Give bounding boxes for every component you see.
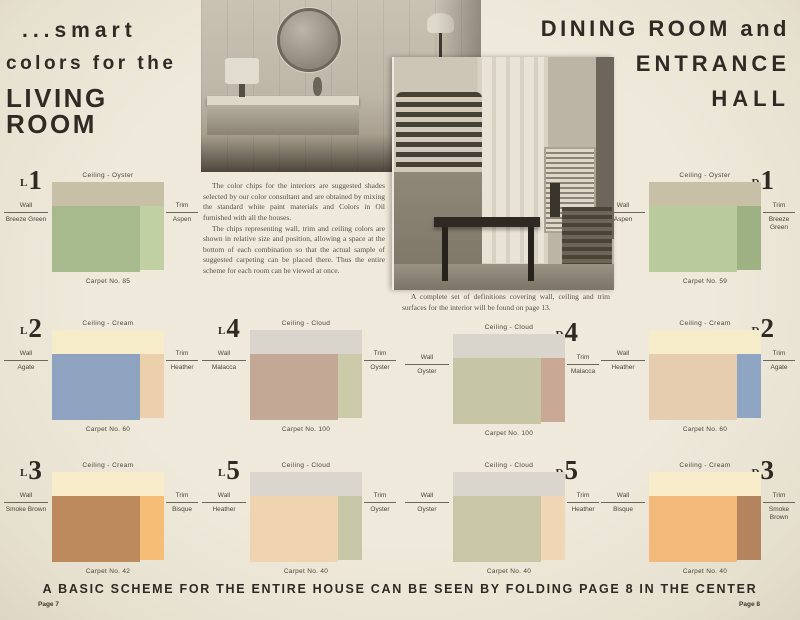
wall-chip — [649, 354, 737, 420]
round-mirror — [277, 8, 341, 72]
carpet-caption: Carpet No. 100 — [453, 430, 565, 437]
console-front — [207, 105, 359, 135]
candlestick-lamp — [550, 183, 560, 217]
scheme-letter: L — [218, 467, 225, 479]
trim-label: Trim Oyster — [364, 350, 396, 372]
table-leg — [528, 227, 534, 281]
trim-label: Trim Smoke Brown — [763, 492, 795, 522]
scheme-digit: 2 — [28, 318, 42, 340]
trim-color-name: Breeze Green — [763, 213, 795, 232]
wall-label: Wall Bisque — [601, 492, 645, 514]
ceiling-chip — [649, 182, 761, 206]
swatch-box — [250, 330, 362, 420]
wall-color-name: Smoke Brown — [4, 503, 48, 514]
trim-chip — [140, 206, 164, 270]
wall-chip — [52, 354, 140, 420]
wall-label: Wall Malacca — [202, 350, 246, 372]
trim-chip — [737, 354, 761, 418]
table-lamp-base — [239, 84, 245, 97]
trim-label: Trim Bisque — [166, 492, 198, 514]
trim-label: Trim Oyster — [364, 492, 396, 514]
trim-label: Trim Heather — [567, 492, 599, 514]
wall-color-name: Oyster — [405, 503, 449, 514]
wall-label: Wall Oyster — [405, 354, 449, 376]
color-scheme-panel: L5 Ceiling - Cloud Wall Heather Trim Oys… — [200, 448, 395, 582]
footer-banner: A BASIC SCHEME FOR THE ENTIRE HOUSE CAN … — [0, 582, 800, 596]
trim-word: Trim — [567, 354, 599, 365]
wall-color-name: Heather — [202, 503, 246, 514]
wall-color-name: Agate — [4, 361, 48, 372]
wall-chip — [649, 496, 737, 562]
ceiling-chip — [649, 472, 761, 496]
swatch-box — [250, 472, 362, 562]
ceiling-chip — [453, 472, 565, 496]
striped-settee — [396, 92, 482, 172]
scheme-digit: 2 — [761, 318, 775, 340]
title-line-dining-room-and: DINING ROOM and — [490, 18, 790, 40]
vase — [313, 77, 322, 96]
wall-word: Wall — [4, 350, 48, 361]
wall-color-name: Bisque — [601, 503, 645, 514]
ceiling-chip — [52, 472, 164, 496]
carpet-caption: Carpet No. 100 — [250, 426, 362, 433]
carpet-caption: Carpet No. 40 — [453, 568, 565, 575]
ceiling-chip — [649, 330, 761, 354]
console-shelf — [207, 96, 359, 105]
wall-label: Wall Agate — [4, 350, 48, 372]
trim-chip — [541, 358, 565, 422]
wall-label: Wall Heather — [601, 350, 645, 372]
page-number-left: Page 7 — [38, 601, 59, 608]
scheme-letter: L — [20, 177, 27, 189]
carpet-caption: Carpet No. 60 — [649, 426, 761, 433]
ceiling-caption: Ceiling - Oyster — [649, 172, 761, 179]
ceiling-chip — [52, 330, 164, 354]
trim-label: Trim Agate — [763, 350, 795, 372]
wall-word: Wall — [202, 492, 246, 503]
color-scheme-panel: L1 Ceiling - Oyster Wall Breeze Green Tr… — [2, 158, 197, 292]
wall-color-name: Oyster — [405, 365, 449, 376]
scheme-number: L5 — [218, 460, 240, 482]
swatch-box — [649, 330, 761, 420]
light-curtain — [482, 57, 544, 263]
color-scheme-panel: L4 Ceiling - Cloud Wall Malacca Trim Oys… — [200, 306, 395, 440]
scheme-digit: 3 — [761, 460, 775, 482]
scheme-letter: L — [20, 467, 27, 479]
wall-color-name: Heather — [601, 361, 645, 372]
trim-word: Trim — [166, 350, 198, 361]
trim-word: Trim — [567, 492, 599, 503]
trim-color-name: Oyster — [364, 361, 396, 372]
wall-color-name: Breeze Green — [4, 213, 48, 224]
wall-chip — [649, 206, 737, 272]
trim-color-name: Aspen — [166, 213, 198, 224]
wall-word: Wall — [405, 492, 449, 503]
page-number-right: Page 8 — [739, 601, 760, 608]
ceiling-caption: Ceiling - Cloud — [453, 462, 565, 469]
title-line-colors-for-the: colors for the — [6, 54, 201, 73]
intro-paragraphs: The color chips for the interiors are su… — [203, 181, 385, 277]
trim-color-name: Heather — [567, 503, 599, 514]
scheme-digit: 5 — [565, 460, 579, 482]
color-scheme-panel: L3 Ceiling - Cream Wall Smoke Brown Trim… — [2, 448, 197, 582]
scheme-letter: L — [20, 325, 27, 337]
wall-chip — [453, 358, 541, 424]
ceiling-caption: Ceiling - Cream — [52, 462, 164, 469]
trim-color-name: Malacca — [567, 365, 599, 376]
wall-chip — [52, 206, 140, 272]
dining-room-photo — [392, 57, 614, 290]
wall-label: Wall Oyster — [405, 492, 449, 514]
scheme-digit: 4 — [565, 322, 579, 344]
carpet-caption: Carpet No. 40 — [250, 568, 362, 575]
scheme-digit: 3 — [28, 460, 42, 482]
color-scheme-panel: D1 Ceiling - Oyster Wall Aspen Trim Bree… — [599, 158, 794, 292]
carpet-caption: Carpet No. 59 — [649, 278, 761, 285]
carpet-caption: Carpet No. 42 — [52, 568, 164, 575]
trim-word: Trim — [166, 492, 198, 503]
wall-chip — [250, 354, 338, 420]
trim-color-name: Smoke Brown — [763, 503, 795, 522]
paragraph-color-chips: The color chips for the interiors are su… — [203, 181, 385, 224]
wall-word: Wall — [405, 354, 449, 365]
scheme-number: L2 — [20, 318, 42, 340]
wall-label: Wall Heather — [202, 492, 246, 514]
dining-table-top — [434, 217, 540, 227]
ceiling-caption: Ceiling - Oyster — [52, 172, 164, 179]
scheme-number: L1 — [20, 170, 42, 192]
table-leg — [442, 227, 448, 281]
trim-color-name: Oyster — [364, 503, 396, 514]
trim-word: Trim — [166, 202, 198, 213]
trim-color-name: Heather — [166, 361, 198, 372]
wall-label: Wall Smoke Brown — [4, 492, 48, 514]
color-scheme-panel: D3 Ceiling - Cream Wall Bisque Trim Smok… — [599, 448, 794, 582]
wall-word: Wall — [601, 492, 645, 503]
wall-word: Wall — [4, 202, 48, 213]
carpet-caption: Carpet No. 85 — [52, 278, 164, 285]
trim-label: Trim Aspen — [166, 202, 198, 224]
trim-chip — [140, 354, 164, 418]
swatch-box — [52, 330, 164, 420]
brochure-spread: ...smart colors for the LIVING ROOM DINI… — [0, 0, 800, 620]
trim-color-name: Agate — [763, 361, 795, 372]
ceiling-caption: Ceiling - Cloud — [453, 324, 565, 331]
wall-color-name: Malacca — [202, 361, 246, 372]
wall-chip — [250, 496, 338, 562]
swatch-box — [52, 472, 164, 562]
ceiling-chip — [453, 334, 565, 358]
ceiling-caption: Ceiling - Cream — [52, 320, 164, 327]
scheme-digit: 1 — [28, 170, 42, 192]
scheme-digit: 4 — [226, 318, 240, 340]
color-scheme-panel: D2 Ceiling - Cream Wall Heather Trim Aga… — [599, 306, 794, 440]
trim-label: Trim Malacca — [567, 354, 599, 376]
swatch-box — [453, 334, 565, 424]
trim-word: Trim — [364, 492, 396, 503]
table-lamp-shade — [225, 58, 259, 84]
trim-label: Trim Heather — [166, 350, 198, 372]
living-room-title: ...smart colors for the LIVING ROOM — [6, 20, 201, 137]
ceiling-chip — [250, 472, 362, 496]
scheme-digit: 5 — [226, 460, 240, 482]
color-scheme-panel: D5 Ceiling - Cloud Wall Oyster Trim Heat… — [403, 448, 598, 582]
color-scheme-panel: D4 Ceiling - Cloud Wall Oyster Trim Mala… — [403, 310, 598, 444]
ceiling-chip — [52, 182, 164, 206]
ceiling-caption: Ceiling - Cream — [649, 320, 761, 327]
trim-chip — [737, 496, 761, 560]
scheme-letter: L — [218, 325, 225, 337]
swatch-box — [649, 472, 761, 562]
trim-chip — [338, 496, 362, 560]
wall-word: Wall — [4, 492, 48, 503]
carpet-caption: Carpet No. 40 — [649, 568, 761, 575]
trim-chip — [541, 496, 565, 560]
wall-word: Wall — [601, 350, 645, 361]
trim-word: Trim — [763, 202, 795, 213]
wall-label: Wall Breeze Green — [4, 202, 48, 224]
trim-word: Trim — [763, 492, 795, 503]
color-scheme-panel: L2 Ceiling - Cream Wall Agate Trim Heath… — [2, 306, 197, 440]
trim-label: Trim Breeze Green — [763, 202, 795, 232]
wall-word: Wall — [202, 350, 246, 361]
trim-word: Trim — [763, 350, 795, 361]
trim-color-name: Bisque — [166, 503, 198, 514]
swatch-box — [649, 182, 761, 272]
trim-chip — [737, 206, 761, 270]
carpet-caption: Carpet No. 60 — [52, 426, 164, 433]
ceiling-caption: Ceiling - Cloud — [250, 462, 362, 469]
title-line-smart: ...smart — [6, 20, 201, 41]
ceiling-caption: Ceiling - Cream — [649, 462, 761, 469]
wall-chip — [453, 496, 541, 562]
swatch-box — [52, 182, 164, 272]
scheme-number: L3 — [20, 460, 42, 482]
photo-floor — [394, 264, 614, 290]
trim-word: Trim — [364, 350, 396, 361]
title-line-living-room: LIVING ROOM — [6, 85, 201, 137]
swatch-box — [453, 472, 565, 562]
scheme-digit: 1 — [761, 170, 775, 192]
scheme-number: L4 — [218, 318, 240, 340]
ceiling-chip — [250, 330, 362, 354]
wall-chip — [52, 496, 140, 562]
ceiling-caption: Ceiling - Cloud — [250, 320, 362, 327]
trim-chip — [338, 354, 362, 418]
trim-chip — [140, 496, 164, 560]
paragraph-chip-layout: The chips representing wall, trim and ce… — [203, 224, 385, 277]
